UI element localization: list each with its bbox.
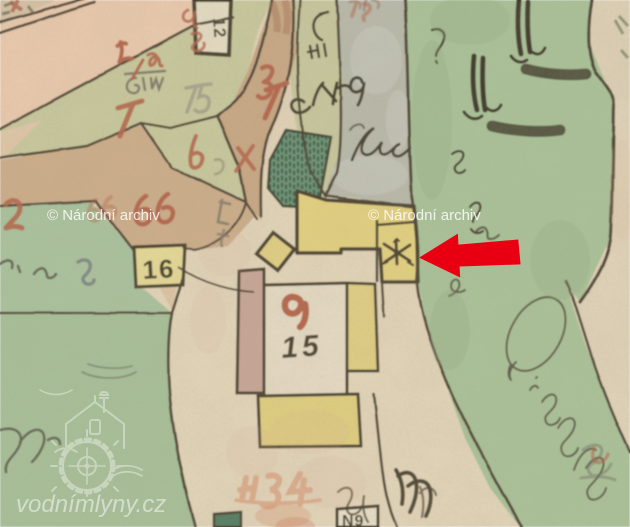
svg-text:© Národní archiv: © Národní archiv — [47, 207, 160, 224]
svg-text:© Národní archiv: © Národní archiv — [368, 207, 481, 224]
svg-text:vodnímlyny.cz: vodnímlyny.cz — [16, 491, 166, 518]
